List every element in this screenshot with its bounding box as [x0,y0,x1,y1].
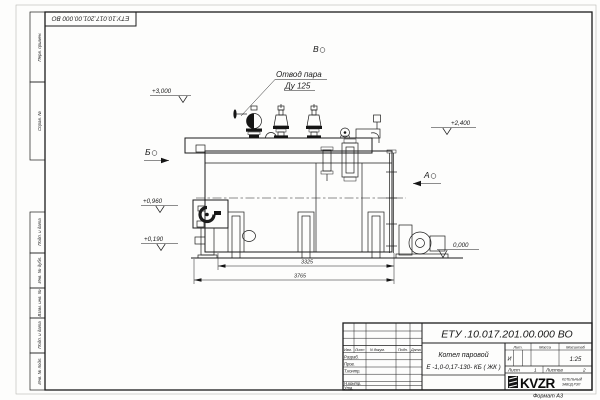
elevation-value: 0,000 [453,242,469,249]
margin-label-podp-data-2: Подп. и дата [37,321,42,349]
tb-h-massa: Масса [539,344,552,349]
tb-row-utv: Утв. [344,385,353,390]
tb-h-data: Дата [410,348,421,352]
title-block: ЕТУ .10.017.201.00.000 ВО Котел паровой … [343,323,592,400]
manhole [243,231,256,242]
tb-h-izm: Изм. [344,348,352,352]
safety-neck [279,110,283,115]
tb-row-prov: Пров. [344,362,355,367]
tb-sheet-value: 1 [534,368,537,373]
view-label-a: А [423,170,430,180]
valve-flange-2 [248,132,260,135]
tb-doc-number: ЕТУ .10.017.201.00.000 ВО [441,329,572,341]
tb-h-lit: Лит. [512,344,522,349]
safety-flange [273,126,289,129]
tb-scale: 1:25 [570,357,582,363]
view-a-rotation-icon [431,174,436,179]
safety-base-flange [274,135,288,138]
tb-lit-block: Лит. Масса Масштаб И 1:25 Лист 1 Листов … [505,343,592,373]
tb-left-section: Изм. Лист N докум. Подп. Дата Разраб. Пр… [343,323,422,390]
gauge2-frame [342,143,358,177]
burner-housing [193,200,228,228]
tb-sheets-label: Листов [545,368,563,373]
tb-row-razrab: Разраб. [344,354,359,359]
safety-spring-housing [307,115,321,126]
safety-flange-2 [276,129,286,132]
water-level-gauges [321,139,358,181]
safety-base-flange [307,135,321,138]
safety-valve-2 [306,104,322,138]
margin-label-podp-data-1: Подп. и дата [37,218,42,246]
kvzr-logo-sub-1: КОТЕЛЬНЫЙ [562,378,583,382]
tb-sheets-value: 2 [582,368,586,373]
elevation-symbol [156,206,164,213]
dim-text-3765: 3765 [294,274,307,280]
burner-nozzle [214,211,221,215]
elevation-value: +2,400 [451,120,471,127]
elevation-value: +0,190 [144,236,164,243]
view-b-rotation-icon [152,151,157,156]
pump-base [396,254,448,258]
pump-stand [399,225,412,255]
elevation-symbol [179,96,187,103]
safety-neck [312,110,316,115]
view-label-v: В [313,44,319,54]
pump-motor [430,236,445,251]
gauge2-top-fitting [344,139,356,143]
leg [228,212,244,252]
safety-flange-2 [309,129,319,132]
left-fitting [196,145,205,152]
dim-arrow [387,278,395,281]
boiler-drawing: Отвод пара Ду 125 В Б А +3,000 [141,44,479,284]
gauge1-bottom-cap [321,171,333,174]
tb-h-podp: Подп. [398,348,408,352]
boiler-casing [205,151,392,252]
tb-logo-area: KVZR КОТЕЛЬНЫЙ ЗАВОД РЭП [508,376,583,391]
tb-h-masshtab: Масштаб [566,344,585,349]
annotation-leader [241,80,275,117]
elevation-symbol [157,244,165,251]
view-labels: В Б А [144,44,441,186]
leg [298,212,314,252]
elevation-value: +0,960 [143,198,163,205]
view-a-arrow-head [413,181,421,187]
elevation-3000: +3,000 [150,88,191,103]
tb-row-tkontr: Т.контр. [344,369,361,374]
boiler-body [195,145,406,252]
safety-spring-housing [274,115,288,126]
burner-support [201,228,214,255]
tb-h-list: Лист [354,348,365,352]
kvzr-logo-sub-2: ЗАВОД РЭП [562,383,581,387]
safety-valve-1 [273,104,289,138]
view-label-b: Б [145,147,151,157]
elevation-0000: 0,000 [437,242,479,258]
kvzr-logo-text: KVZR [520,376,556,391]
tb-product-name-2: Е -1,0-0,17-130- КБ ( ЖК ) [426,364,500,371]
dim-text-3325: 3325 [301,260,314,266]
burner-hub [205,213,209,217]
safety-flange [306,126,322,129]
drawing-sheet: Перв. примен. Справ. № Подп. и дата Инв.… [0,0,600,400]
steam-outlet-valve [233,106,262,138]
left-fitting [195,237,205,244]
margin-label-perv-primen: Перв. примен. [37,32,42,61]
corner-stamp-doc-number: ЕТУ.10.017.201.00.000 ВО [52,15,130,22]
annotation-text-1: Отвод пара [276,70,322,79]
margin-label-sprav-no: Справ. № [37,111,42,131]
valve-flange [246,129,262,132]
elevation-symbol [443,128,451,135]
gauge1-top-cap [321,147,333,150]
margin-label-inv-dubl: Инв. № дубл. [37,256,42,283]
dim-arrow [387,264,395,267]
support-legs [228,212,384,258]
elevation-0190: +0,190 [141,236,178,251]
elevation-value: +3,000 [152,88,172,95]
leg [368,212,384,252]
dim-arrow [218,264,226,267]
tb-sheet-label: Лист [507,368,520,373]
left-margin-column: Перв. примен. Справ. № Подп. и дата Инв.… [30,12,45,390]
corner-stamp: ЕТУ.10.017.201.00.000 ВО [45,12,136,26]
tb-product-name-1: Котел паровой [438,351,488,359]
dim-arrow [194,278,202,281]
tb-lit-value: И [508,357,512,363]
valve-body-shade [247,114,254,129]
annotation-text-2: Ду 125 [284,82,311,91]
tb-h-dokum: N докум. [370,348,385,352]
view-v-rotation-icon [320,48,325,53]
view-b-arrow-head [161,158,169,164]
format-note: Формат А3 [533,394,564,400]
elevation-0960: +0,960 [141,198,178,213]
valve-nozzle [249,135,259,138]
pump-hub [416,239,425,248]
margin-label-inv-podl: Инв. № подл. [37,357,42,384]
drum-fitting-dot [344,131,347,134]
valve-cap [251,106,257,110]
elevation-2400: +2,400 [431,120,476,135]
lever-knob [374,115,381,122]
margin-label-vzam-inv: Взам. инв. № [37,289,42,316]
gauge2-bottom-fitting [344,177,356,181]
